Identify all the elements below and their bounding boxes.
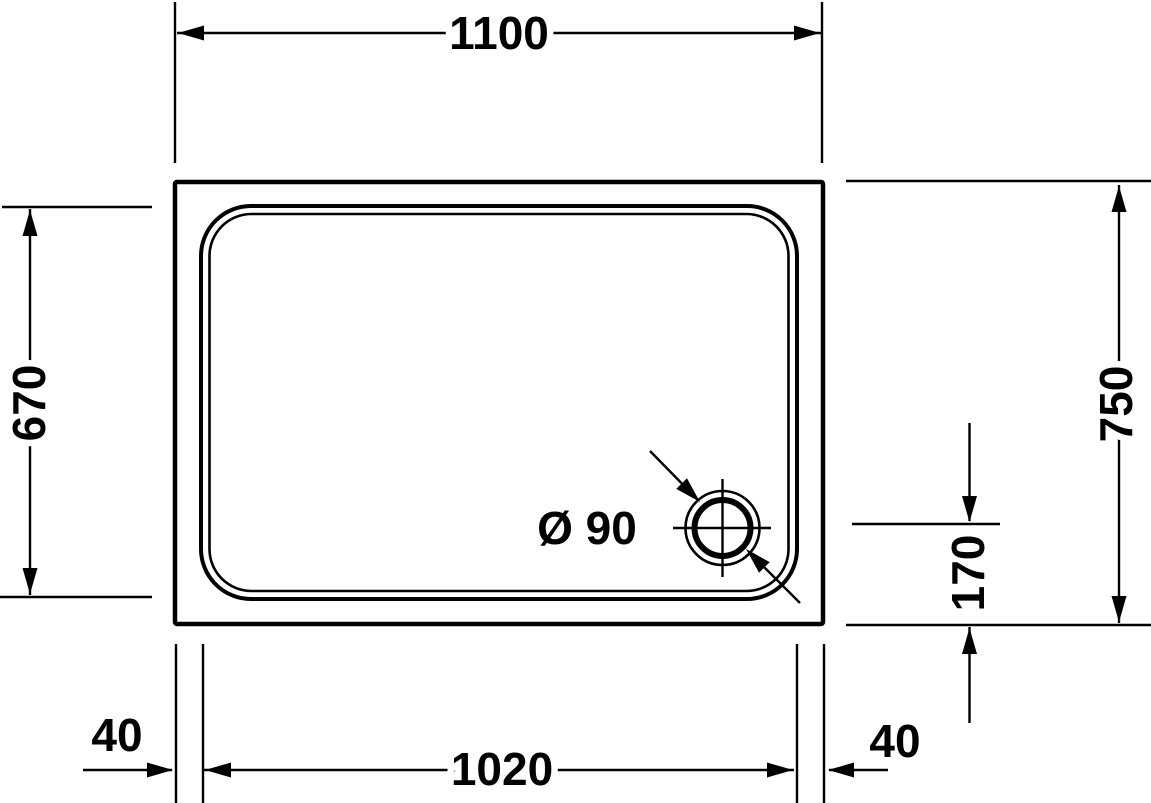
shower-tray-dimension-drawing: Ø 90 1100 670 — [0, 0, 1151, 803]
dim-right-overall-height: 750 — [846, 181, 1151, 625]
bottom-right-rim-label: 40 — [869, 715, 920, 767]
arrowhead-icon — [23, 568, 38, 594]
bottom-left-rim-label: 40 — [91, 709, 142, 761]
right-overall-height-label: 750 — [1090, 366, 1142, 443]
dim-left-inner-height: 670 — [0, 207, 152, 597]
arrowhead-icon — [23, 210, 38, 236]
drain-to-bottom-label: 170 — [942, 535, 994, 612]
arrowhead-icon — [794, 26, 820, 41]
arrowhead-icon — [962, 628, 977, 654]
arrowhead-icon — [828, 763, 854, 778]
dim-bottom-row: 40 1020 40 — [83, 644, 921, 803]
arrowhead-icon — [178, 26, 204, 41]
technical-drawing-canvas: Ø 90 1100 670 — [0, 0, 1151, 803]
arrowhead-icon — [1112, 186, 1127, 212]
top-width-label: 1100 — [449, 7, 549, 59]
arrowhead-icon — [767, 763, 793, 778]
bottom-inner-width-label: 1020 — [451, 743, 553, 795]
arrowhead-icon — [205, 763, 231, 778]
left-inner-height-label: 670 — [3, 365, 55, 442]
dim-top-width: 1100 — [175, 2, 822, 163]
arrowhead-icon — [1112, 596, 1127, 622]
drain-diameter-label: Ø 90 — [537, 502, 637, 554]
arrowhead-icon — [147, 763, 173, 778]
dim-drain-to-bottom: 170 — [852, 423, 1000, 723]
arrowhead-icon — [962, 496, 977, 522]
